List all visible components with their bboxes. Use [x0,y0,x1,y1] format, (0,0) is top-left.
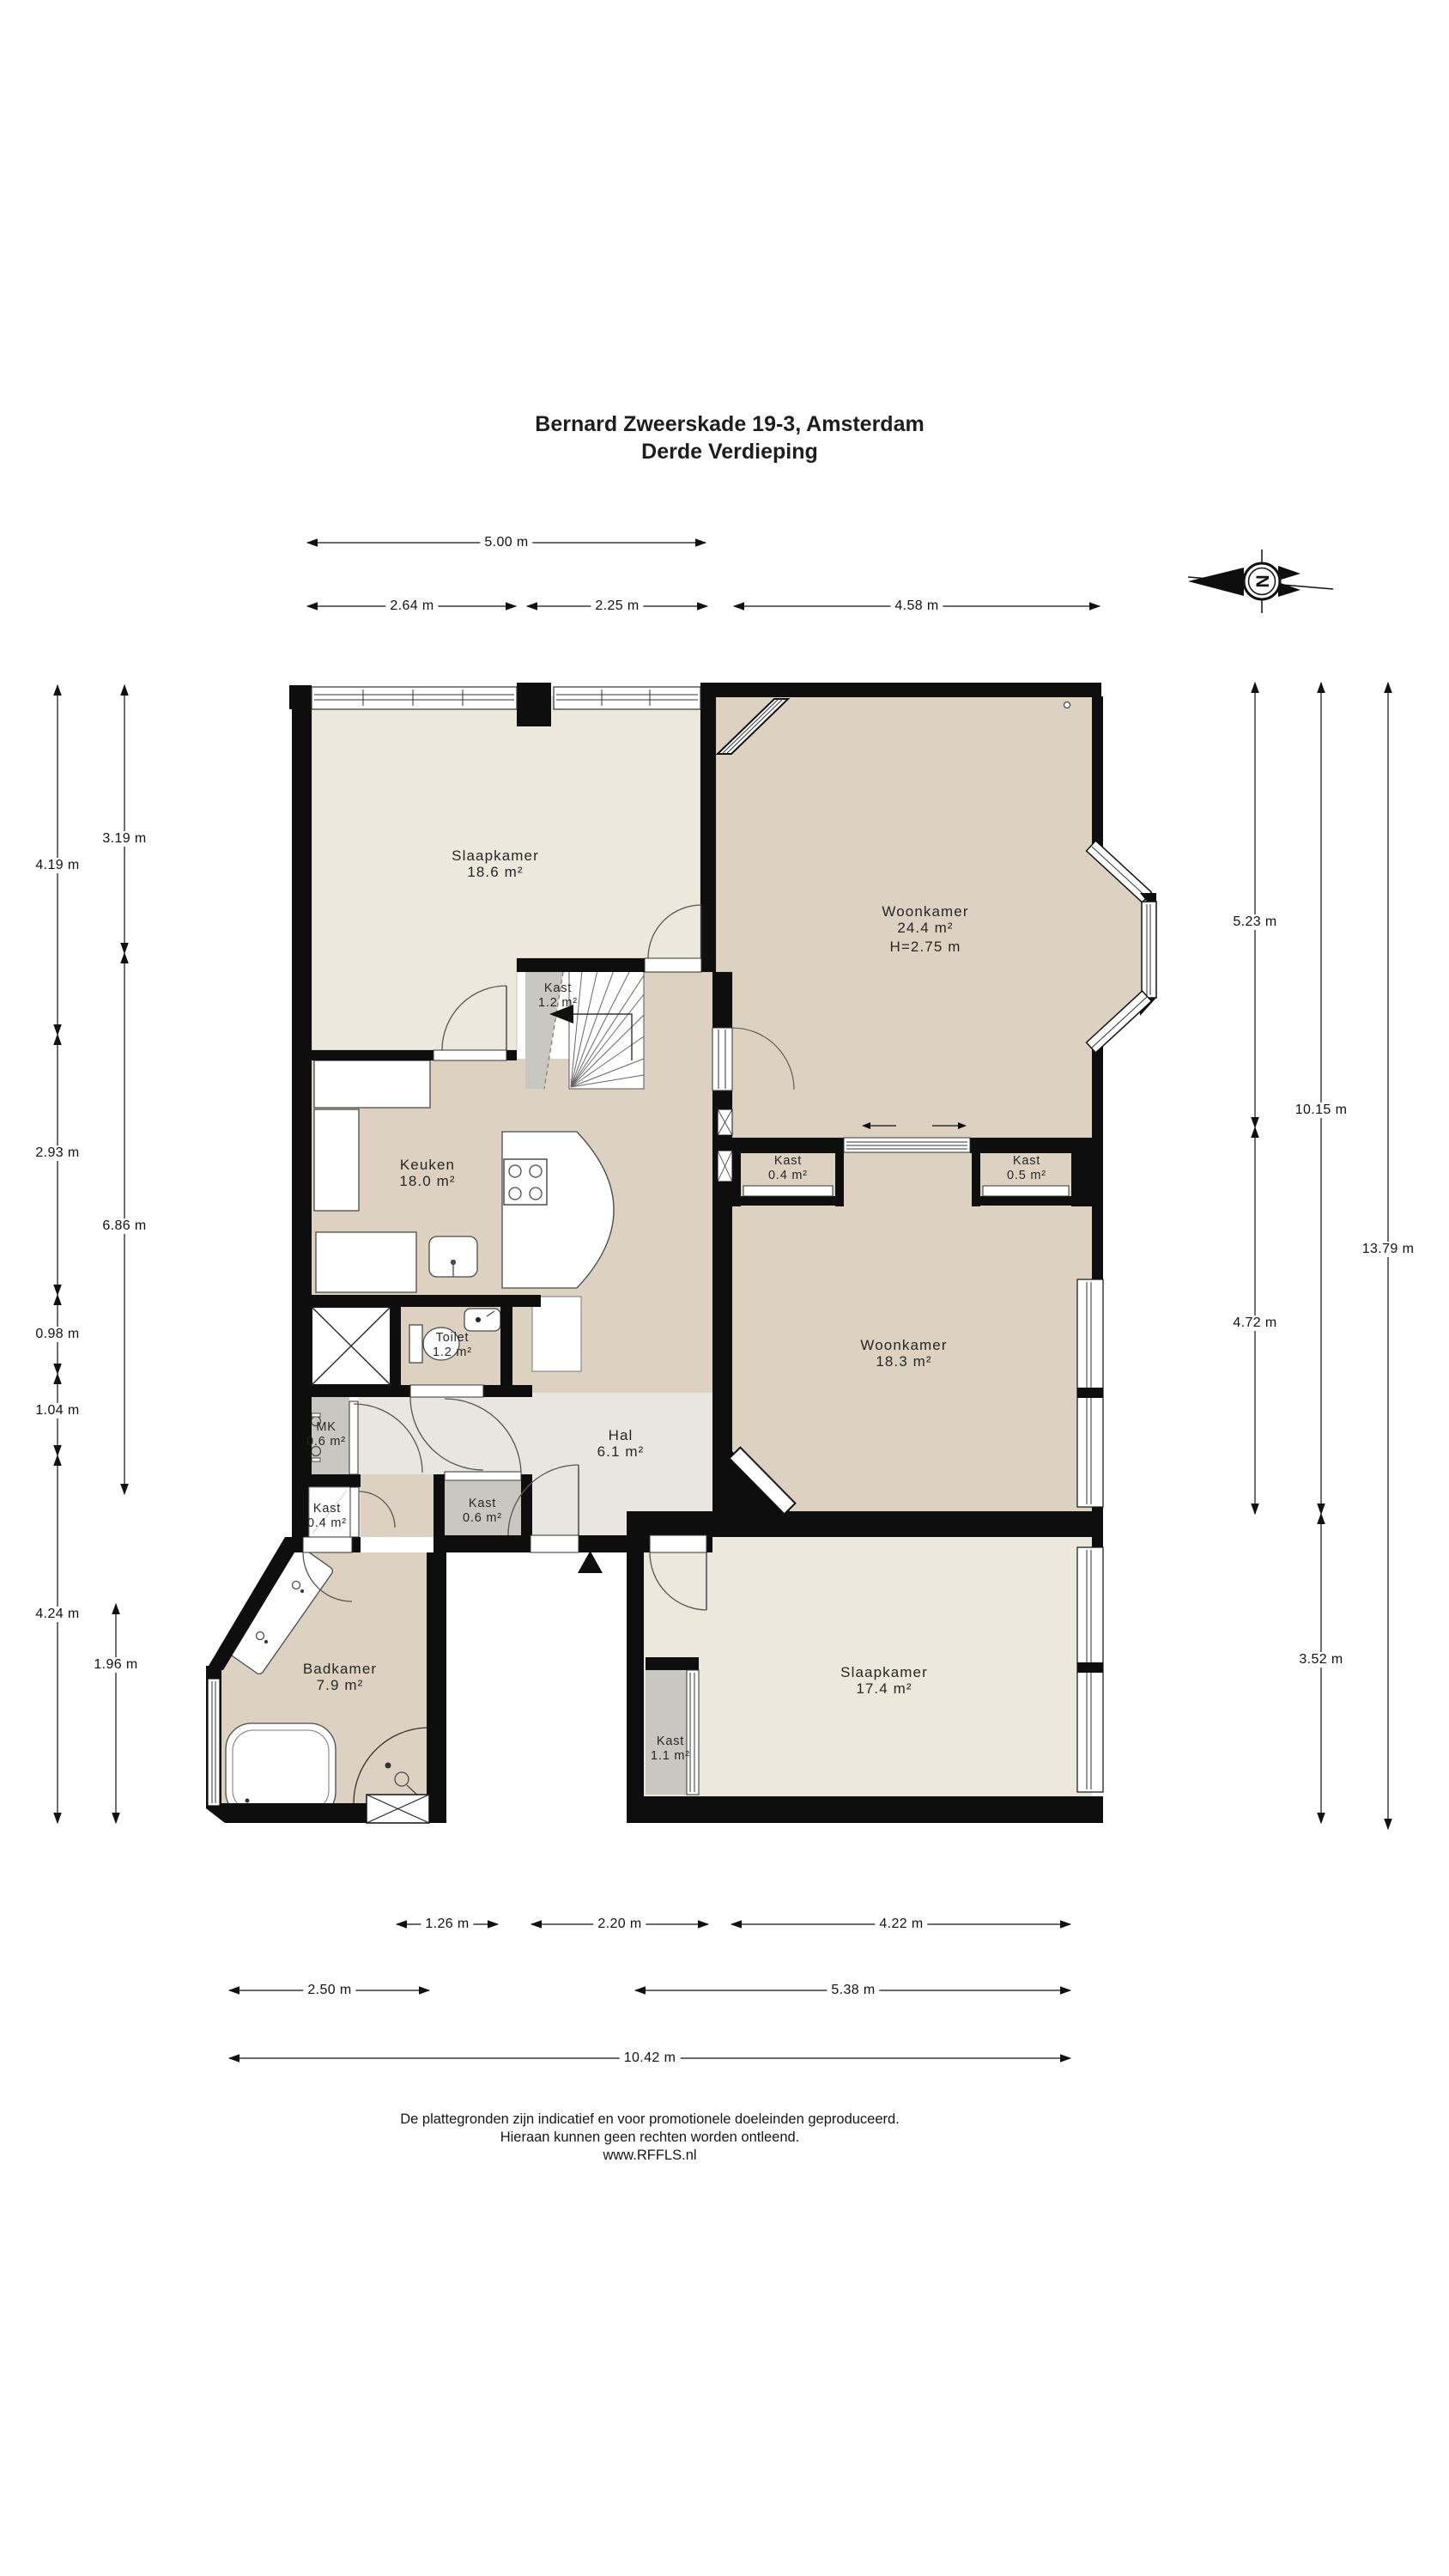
room-label-kast-woonkamer-rechts: Kast0.5 m² [1007,1154,1046,1183]
floorplan-drawing: N [0,0,1449,2576]
dimension-label: 1.26 m [421,1917,473,1932]
dimension-label: 4.58 m [890,598,943,614]
dimension-label: 10.42 m [620,2050,681,2066]
room-label-woonkamer-2: Woonkamer18.3 m² [860,1337,947,1370]
dimension-label: 4.19 m [31,858,83,873]
room-label-woonkamer-1: Woonkamer24.4 m² H=2.75 m [882,903,968,955]
compass-north-arrow [1188,568,1244,596]
dimension-label: 5.23 m [1228,914,1281,930]
footer-disclaimer: De plattegronden zijn indicatief en voor… [400,2111,900,2165]
dimension-label: 10.15 m [1291,1103,1352,1118]
room-label-kast-slaapkamer: Kast1.1 m² [651,1735,690,1764]
dimension-label: 2.93 m [31,1145,83,1161]
entrance-arrow [578,1551,603,1573]
dimension-label: 4.24 m [31,1607,83,1622]
room-label-slaapkamer-1: Slaapkamer18.6 m² [452,848,539,880]
floorplan-page: { "title": { "line1": "Bernard Zweerskad… [0,0,1449,2576]
dimension-label: 1.04 m [31,1403,83,1419]
page-title-floor: Derde Verdieping [535,438,924,465]
room-label-toilet: Toilet1.2 m² [433,1331,472,1360]
dimension-label: 3.19 m [98,831,150,847]
room-label-keuken: Keuken18.0 m² [399,1157,455,1189]
dimension-label: 1.96 m [89,1657,142,1673]
dimension-label: 5.00 m [480,535,532,550]
room-label-slaapkamer-2: Slaapkamer17.4 m² [840,1664,928,1697]
room-label-kast-trap: Kast1.2 m² [538,981,578,1011]
room-label-kast-hal-links: Kast0.4 m² [307,1502,347,1531]
room-label-kast-woonkamer-links: Kast0.4 m² [768,1154,808,1183]
dimension-label: 2.20 m [593,1917,646,1932]
dimension-label: 4.72 m [1228,1315,1281,1331]
footer-website: www.RFFLS.nl [400,2147,900,2165]
compass-letter: N [1252,574,1272,587]
compass: N [1188,550,1333,613]
dimension-label: 2.25 m [591,598,643,614]
dimension-label: 6.86 m [98,1218,150,1234]
dimension-label: 5.38 m [827,1983,879,1998]
room-label-kast-hal-rechts: Kast0.6 m² [463,1497,502,1526]
room-label-hal: Hal6.1 m² [597,1427,645,1460]
page-title-address: Bernard Zweerskade 19-3, Amsterdam [535,410,924,438]
room-label-mk: MK0.6 m² [306,1420,346,1449]
dimension-label: 13.79 m [1358,1242,1419,1257]
dimension-label: 2.50 m [303,1983,355,1998]
dimension-label: 4.22 m [875,1917,927,1932]
dimension-label: 3.52 m [1294,1652,1347,1668]
dimension-label: 2.64 m [385,598,438,614]
room-label-badkamer: Badkamer7.9 m² [303,1661,377,1693]
page-title: Bernard Zweerskade 19-3, Amsterdam Derde… [535,410,924,465]
dimension-label: 0.98 m [31,1327,83,1342]
